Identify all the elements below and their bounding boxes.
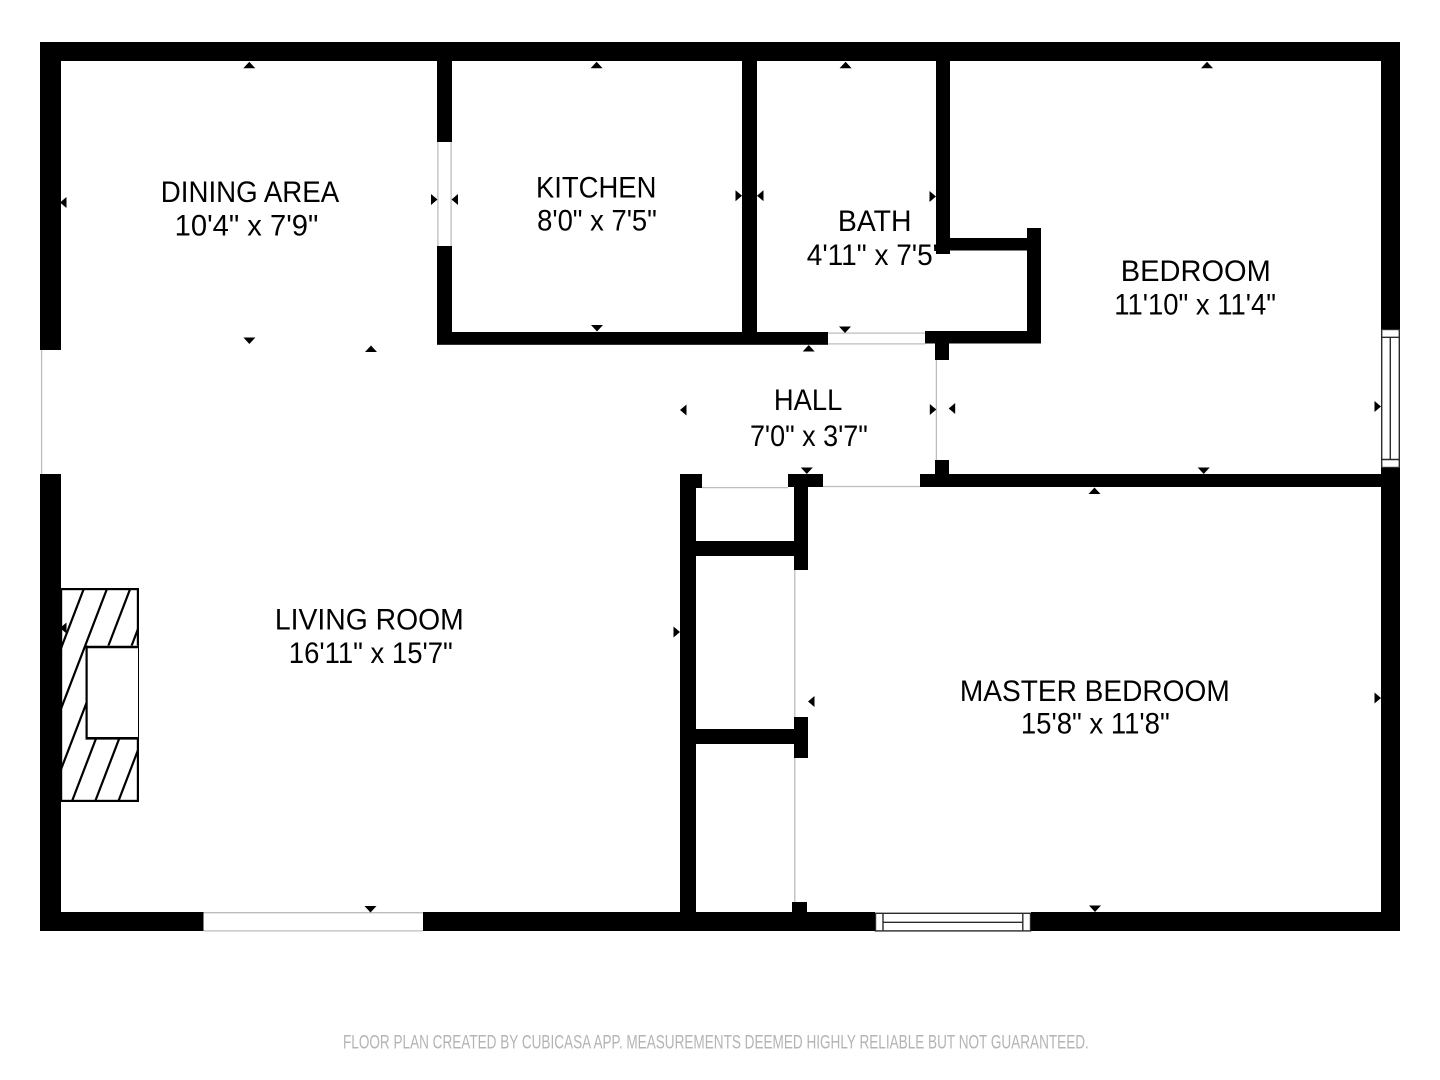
svg-text:11'10" x 11'4": 11'10" x 11'4" <box>1114 289 1276 322</box>
svg-text:8'0" x 7'5": 8'0" x 7'5" <box>537 204 657 237</box>
svg-text:LIVING ROOM: LIVING ROOM <box>275 603 464 636</box>
svg-text:16'11" x 15'7": 16'11" x 15'7" <box>289 637 453 670</box>
svg-text:15'8" x 11'8": 15'8" x 11'8" <box>1021 708 1170 741</box>
svg-text:7'0" x 3'7": 7'0" x 3'7" <box>750 420 868 453</box>
svg-text:KITCHEN: KITCHEN <box>536 172 656 205</box>
svg-text:DINING AREA: DINING AREA <box>161 176 339 209</box>
svg-text:4'11" x 7'5": 4'11" x 7'5" <box>807 239 943 272</box>
svg-text:BEDROOM: BEDROOM <box>1121 255 1271 288</box>
svg-text:HALL: HALL <box>774 384 842 417</box>
svg-text:MASTER BEDROOM: MASTER BEDROOM <box>960 675 1230 708</box>
svg-text:FLOOR PLAN CREATED BY CUBICASA: FLOOR PLAN CREATED BY CUBICASA APP. MEAS… <box>343 1033 1089 1054</box>
svg-text:10'4" x 7'9": 10'4" x 7'9" <box>175 209 319 242</box>
svg-text:BATH: BATH <box>838 205 912 238</box>
